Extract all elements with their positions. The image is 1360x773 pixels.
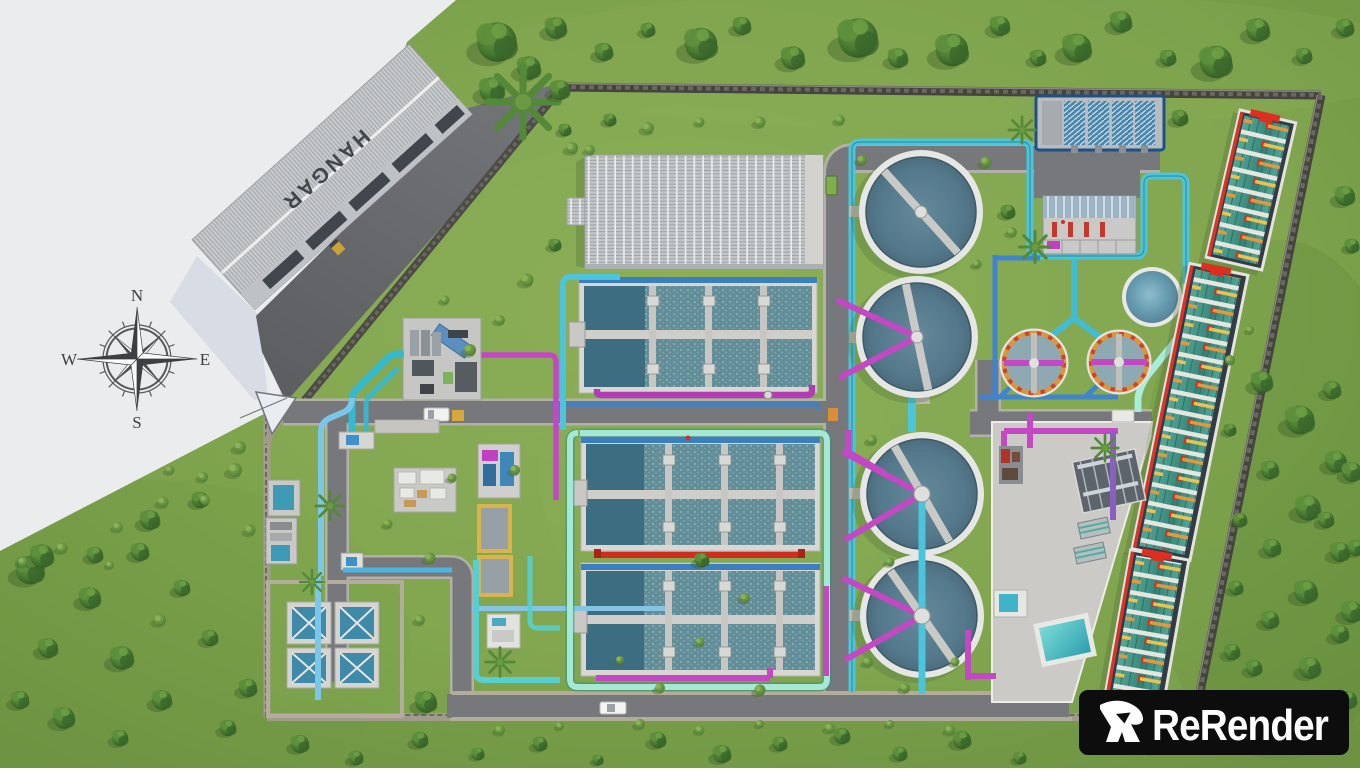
svg-text:W: W [61, 350, 78, 369]
svg-text:S: S [132, 413, 141, 432]
svg-text:N: N [131, 286, 143, 305]
svg-text:ReRender: ReRender [1152, 701, 1329, 750]
svg-text:E: E [200, 350, 210, 369]
